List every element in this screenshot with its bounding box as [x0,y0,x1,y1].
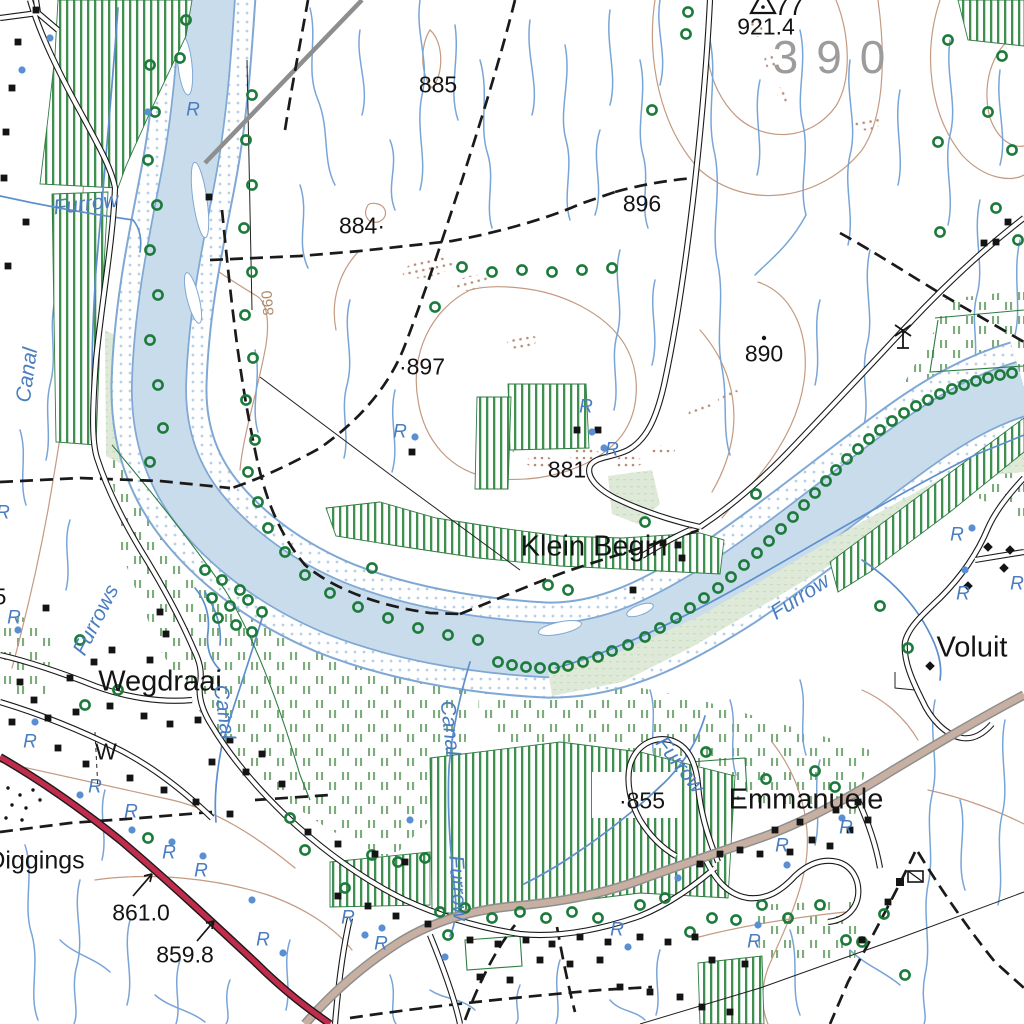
water-point-icon [168,838,175,845]
diggings-icon [10,803,13,806]
water-point-icon [754,921,761,928]
building-icon [141,713,148,720]
water-point-icon [624,943,631,950]
building-icon [167,721,174,728]
building-icon [17,679,24,686]
water-point-icon [76,791,83,798]
building-icon [577,934,584,941]
water-point-icon [838,814,845,821]
spot-height-dot-890 [762,336,766,340]
map-artwork [0,0,1024,1024]
building-icon [195,717,202,724]
building-icon [981,240,988,247]
water-point-icon [783,861,790,868]
water-point-icon [31,718,38,725]
building-icon [227,811,234,818]
building-icon [507,977,514,984]
building-icon [772,827,779,834]
building-icon [574,427,581,434]
building-icon [206,194,213,201]
building-icon [402,859,409,866]
diggings-icon [4,816,7,819]
building-icon [855,799,862,806]
building-icon [227,737,234,744]
building-icon [209,759,216,766]
water-point-icon [378,924,385,931]
building-icon [727,1009,734,1016]
water-point-icon [411,433,418,440]
building-icon [259,751,266,758]
building-icon [677,994,684,1001]
building-icon [147,657,154,664]
building-icon [127,775,134,782]
building-icon [675,542,682,549]
building-icon [717,851,724,858]
building-icon [477,974,484,981]
building-icon [109,647,116,654]
water-point-icon [46,34,53,41]
building-icon [647,989,654,996]
building-icon [679,555,686,562]
building-icon [393,913,400,920]
building-icon [787,849,794,856]
building-icon [372,851,379,858]
building-icon [279,781,286,788]
building-icon [630,587,637,594]
diggings-icon [24,806,27,809]
building-icon [1,175,8,182]
water-point-icon [248,896,255,903]
building-icon [91,659,98,666]
building-icon [73,709,80,716]
building-icon [692,934,699,941]
building-icon [305,829,312,836]
building-icon [55,745,62,752]
water-point-icon [674,874,681,881]
building-icon [523,937,530,944]
water-point-icon [128,826,135,833]
building-icon [617,984,624,991]
building-icon [665,939,672,946]
diggings-icon [31,788,34,791]
building-icon [43,605,50,612]
building-icon [833,807,840,814]
building-icon [660,540,667,547]
building-icon [859,937,866,944]
building-icon [335,841,342,848]
water-point-icon [14,626,21,633]
building-icon [549,941,556,948]
building-icon [23,219,30,226]
diggings-icon [18,793,21,796]
building-icon [243,769,250,776]
building-icon [67,675,74,682]
building-icon [107,703,114,710]
topo-map: WegdraaiKlein BeginEmmanueleVoluitDiggin… [0,0,1024,1024]
building-icon [9,85,16,92]
building-icon [737,847,744,854]
building-icon [15,39,22,46]
building-icon [5,263,12,270]
building-icon [597,957,604,964]
building-icon [9,719,16,726]
water-point-icon [18,66,25,73]
building-icon [83,761,90,768]
diggings-icon [6,786,9,789]
building-icon [161,787,168,794]
building-icon [335,893,342,900]
building-icon [495,941,502,948]
building-icon [865,817,872,824]
building-icon [567,961,574,968]
building-icon [827,843,834,850]
building-icon [847,827,854,834]
diggings-icon [20,818,23,821]
building-icon [365,903,372,910]
building-icon [3,129,10,136]
building-icon [757,851,764,858]
building-icon [33,7,40,14]
water-point-icon [406,816,413,823]
water-point-icon [441,953,448,960]
building-icon [409,449,416,456]
building-icon [193,799,200,806]
building-icon [163,631,170,638]
building-icon [699,1004,706,1011]
water-point-icon [144,108,151,115]
water-point-icon [600,444,607,451]
building-icon [809,837,816,844]
water-point-icon [279,949,286,956]
building-icon [605,939,612,946]
building-icon [467,937,474,944]
building-icon [1005,219,1012,226]
water-point-icon [199,852,206,859]
building-icon [537,957,544,964]
building-icon [31,697,38,704]
water-point-icon [968,524,975,531]
diggings-icon [38,798,41,801]
water-point-icon [588,428,595,435]
building-icon [742,961,749,968]
water-point-icon [961,566,968,573]
building-icon [45,715,52,722]
building-icon [885,899,892,906]
building-icon [425,921,432,928]
building-icon [697,861,704,868]
building-icon [157,609,164,616]
water-point-icon [361,931,368,938]
building-icon [595,427,602,434]
building-icon [797,819,804,826]
building-icon [637,934,644,941]
building-icon [993,239,1000,246]
building-icon [709,957,716,964]
